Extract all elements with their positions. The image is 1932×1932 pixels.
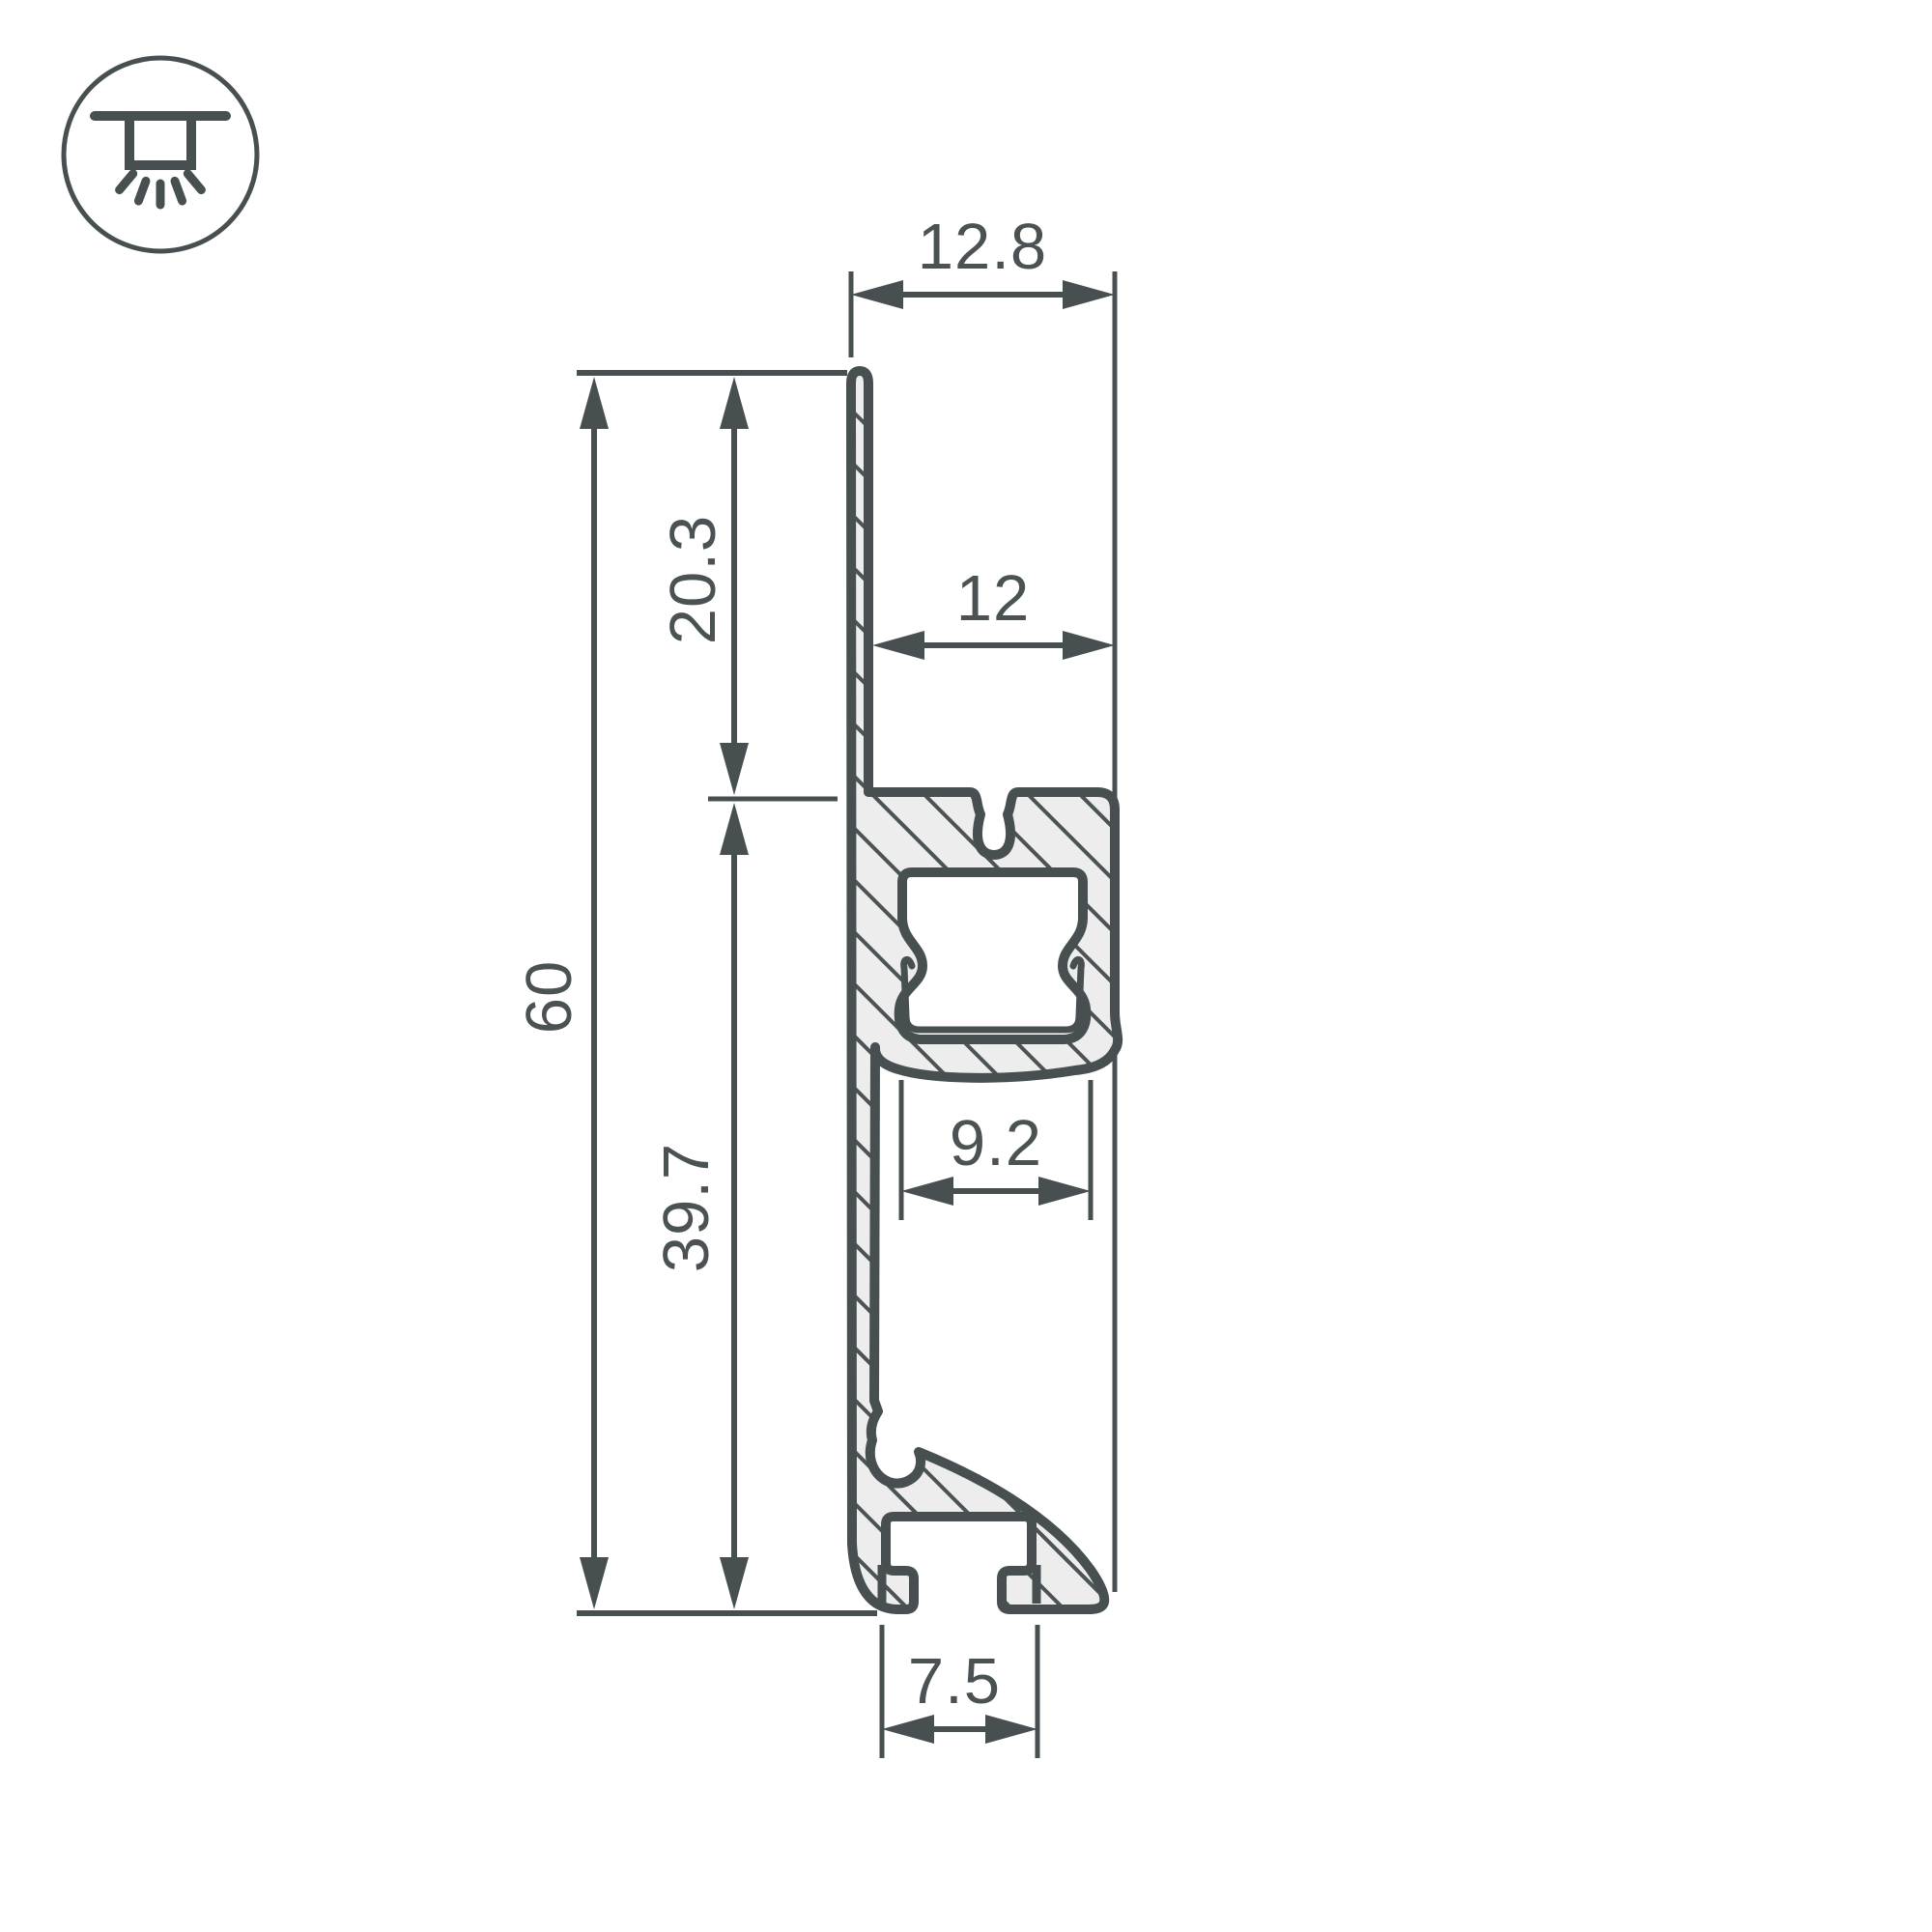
dimension-channel-width: 9.2 [901, 1080, 1091, 1220]
arrowhead-bottom [580, 1557, 609, 1609]
arrowhead-right [1038, 1177, 1091, 1206]
dimension-foot-width: 7.5 [882, 1625, 1037, 1758]
icon-fixture-box [129, 116, 191, 165]
arrowhead-bottom [720, 743, 749, 795]
arrowhead-right [1063, 280, 1115, 309]
dim-label-channel-width: 9.2 [950, 1107, 1042, 1179]
technical-drawing-page: 12.8 12 60 20.3 39.7 9.2 [0, 0, 1932, 1932]
profile-dimension-drawing: 12.8 12 60 20.3 39.7 9.2 [0, 0, 1932, 1932]
dim-label-top-width: 12.8 [918, 211, 1047, 283]
dim-label-lower-height: 39.7 [650, 1143, 723, 1272]
arrowhead-bottom [720, 1557, 749, 1609]
dimension-upper-height: 20.3 [657, 377, 749, 795]
arrowhead-top [580, 377, 609, 429]
icon-light-rays [120, 174, 202, 205]
dim-label-upper-height: 20.3 [657, 515, 729, 644]
dim-label-inner-width: 12 [956, 562, 1031, 635]
dim-label-total-height: 60 [513, 960, 585, 1035]
arrowhead-right [985, 1715, 1037, 1744]
arrowhead-right [1063, 631, 1115, 660]
arrowhead-left [901, 1177, 953, 1206]
arrowhead-left [872, 631, 924, 660]
dimension-lower-height: 39.7 [650, 803, 749, 1609]
arrowhead-left [882, 1715, 934, 1744]
diffuser-clip-line [904, 959, 1082, 1030]
dim-label-foot-width: 7.5 [908, 1645, 1001, 1718]
dimension-total-height: 60 [513, 377, 609, 1609]
arrowhead-top [720, 803, 749, 855]
dimension-top-width: 12.8 [851, 211, 1115, 357]
profile-cross-section [851, 271, 1118, 1609]
dimension-inner-width: 12 [872, 562, 1115, 660]
arrowhead-left [851, 280, 903, 309]
arrowhead-top [720, 377, 749, 429]
recessed-ceiling-light-icon [64, 58, 257, 251]
icon-circle [64, 58, 257, 251]
